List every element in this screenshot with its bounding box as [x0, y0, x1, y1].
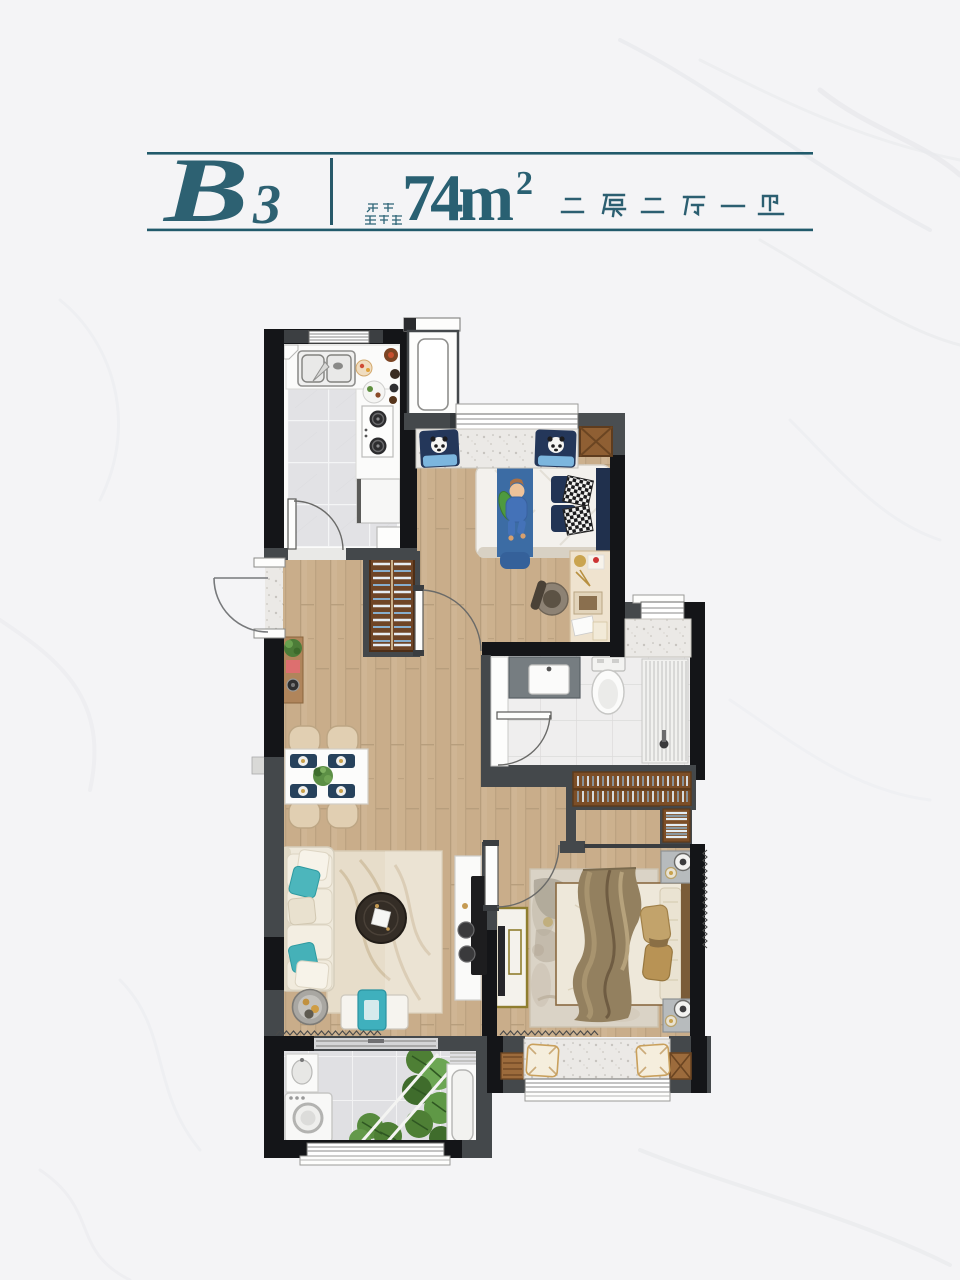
- svg-text:3: 3: [252, 174, 281, 236]
- svg-text:74m: 74m: [402, 161, 514, 235]
- svg-text:B: B: [162, 139, 249, 241]
- svg-text:2: 2: [516, 165, 533, 202]
